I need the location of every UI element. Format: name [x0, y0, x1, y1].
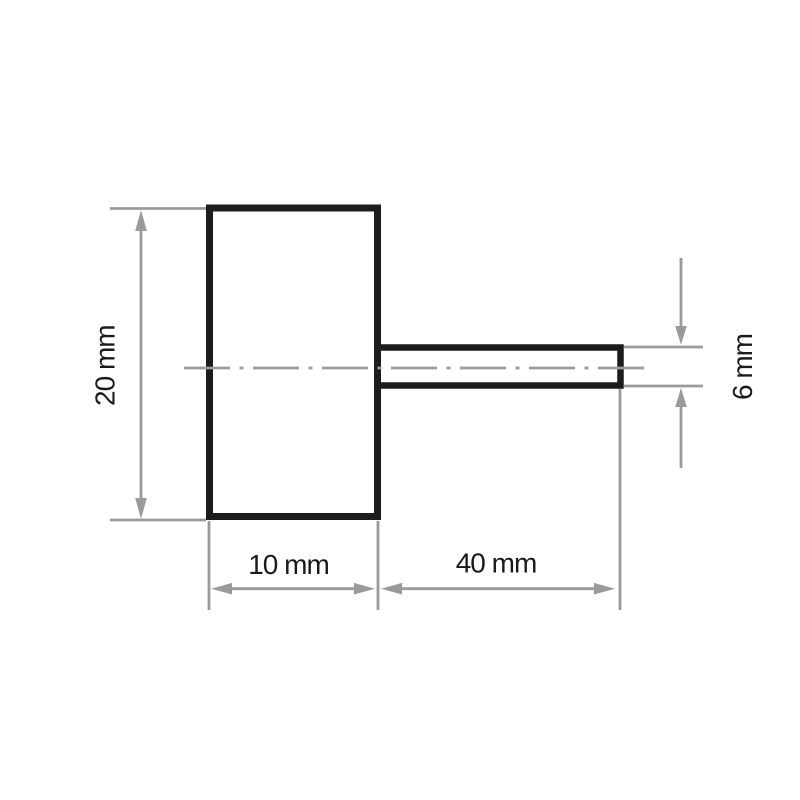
- svg-text:40 mm: 40 mm: [456, 548, 537, 579]
- svg-text:20 mm: 20 mm: [90, 325, 121, 406]
- svg-text:6 mm: 6 mm: [727, 334, 758, 400]
- svg-text:10 mm: 10 mm: [248, 549, 329, 580]
